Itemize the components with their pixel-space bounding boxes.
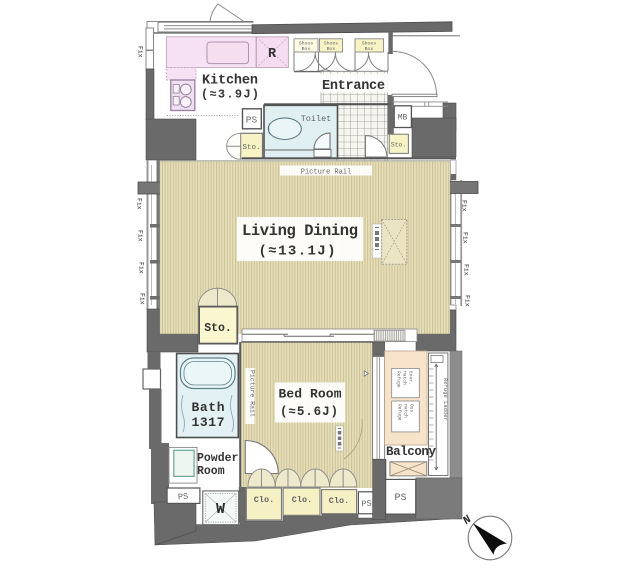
svg-text:Box: Box bbox=[365, 46, 374, 52]
svg-text:(≈13.1J): (≈13.1J) bbox=[259, 244, 336, 260]
svg-text:Shoes: Shoes bbox=[324, 41, 339, 47]
svg-text:PS: PS bbox=[361, 499, 372, 510]
svg-text:Balcony: Balcony bbox=[386, 445, 436, 459]
svg-text:Fix: Fix bbox=[463, 264, 470, 276]
svg-text:Sto.: Sto. bbox=[204, 322, 232, 335]
svg-text:Fix: Fix bbox=[138, 262, 145, 274]
svg-text:Fix: Fix bbox=[137, 46, 144, 58]
svg-text:Shoes: Shoes bbox=[299, 41, 314, 47]
svg-text:Bed Room: Bed Room bbox=[279, 387, 342, 402]
svg-text:PS: PS bbox=[178, 492, 189, 503]
svg-text:Kitchen: Kitchen bbox=[202, 74, 258, 89]
svg-text:PS: PS bbox=[394, 493, 406, 504]
svg-text:Entrance: Entrance bbox=[322, 79, 385, 94]
svg-text:Box: Box bbox=[327, 46, 336, 52]
svg-text:Box: Box bbox=[302, 46, 311, 52]
svg-text:Clo.: Clo. bbox=[329, 496, 349, 506]
svg-text:Refuge Ladder: Refuge Ladder bbox=[442, 378, 449, 421]
svg-text:Picture Rail: Picture Rail bbox=[249, 370, 256, 417]
svg-text:Living Dining: Living Dining bbox=[242, 222, 358, 240]
svg-text:Sto.: Sto. bbox=[242, 144, 260, 152]
svg-text:Powder: Powder bbox=[197, 452, 239, 465]
svg-text:Room: Room bbox=[197, 465, 225, 478]
svg-text:Fix: Fix bbox=[462, 232, 469, 244]
svg-text:PS: PS bbox=[246, 115, 258, 126]
svg-text:Clo.: Clo. bbox=[254, 495, 274, 505]
svg-text:MB: MB bbox=[398, 114, 408, 123]
svg-text:Fix: Fix bbox=[139, 293, 146, 305]
svg-text:Fix: Fix bbox=[464, 295, 471, 307]
svg-text:Fix: Fix bbox=[136, 198, 143, 210]
svg-text:Fix: Fix bbox=[137, 230, 144, 242]
svg-text:R: R bbox=[268, 47, 277, 62]
svg-text:Toilet: Toilet bbox=[301, 114, 332, 124]
svg-text:(≈5.6J): (≈5.6J) bbox=[280, 405, 338, 419]
svg-text:Bath: Bath bbox=[192, 400, 225, 415]
svg-text:Shoes: Shoes bbox=[362, 41, 377, 47]
svg-text:(≈3.9J): (≈3.9J) bbox=[201, 88, 259, 102]
svg-text:Picture Rail: Picture Rail bbox=[301, 169, 351, 177]
svg-text:1317: 1317 bbox=[192, 415, 225, 430]
svg-text:Sto.: Sto. bbox=[391, 142, 407, 149]
svg-text:W: W bbox=[216, 501, 225, 518]
svg-text:Clo.: Clo. bbox=[292, 495, 312, 505]
svg-text:Fix: Fix bbox=[461, 200, 468, 212]
